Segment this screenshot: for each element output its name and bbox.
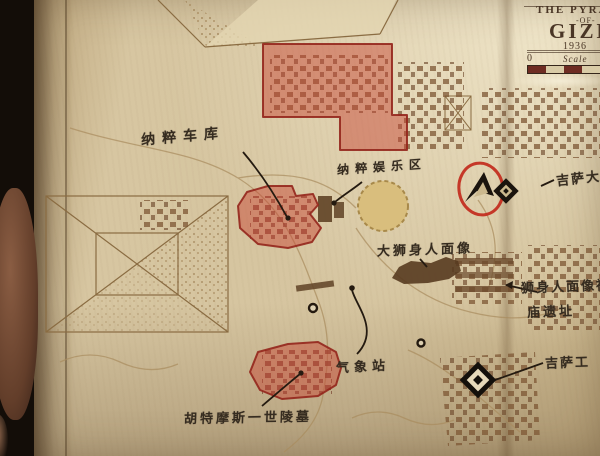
pyramid-plan-top — [158, 0, 398, 47]
title-rule-a — [527, 50, 600, 51]
scale-segment — [582, 66, 600, 73]
label-great-sphinx: 大狮身人面像 — [377, 237, 473, 259]
zone-nazi-compound — [263, 44, 407, 150]
scale-zero: 0 — [527, 53, 532, 64]
label-giza-worksite: 吉萨工 — [545, 351, 591, 372]
waypoint-marker-small[interactable] — [493, 178, 518, 203]
zone-tomb — [250, 342, 341, 399]
label-weather-station: 气象站 — [336, 355, 390, 377]
map-title-line1: THE PYRAM — [536, 4, 600, 16]
sphinx-drawing — [392, 257, 461, 284]
scale-segment — [528, 66, 546, 73]
pyramid-plan-left — [46, 196, 228, 332]
map-artwork — [0, 0, 600, 456]
navigation-arrow-icon — [465, 172, 494, 202]
player-thumb — [0, 188, 38, 420]
scale-label: Scale — [563, 54, 588, 64]
label-tomb-thutmose: 胡特摩斯一世陵墓 — [184, 406, 313, 427]
gold-circle-zone — [358, 181, 408, 231]
label-sphinx-temple-2: 庙遗址 — [527, 300, 576, 321]
small-ring-marker — [418, 340, 425, 347]
scale-segment — [546, 66, 564, 73]
scale-segment — [564, 66, 582, 73]
title-rule-b — [527, 52, 600, 53]
scale-bar — [527, 65, 600, 74]
small-ring-marker — [309, 304, 317, 312]
label-sphinx-temple-1: 狮身人面像神 — [521, 274, 600, 296]
game-map-scene: THE PYRAM -OF- GIZE 1936 0 Scale 纳粹车库 纳粹… — [0, 0, 600, 456]
